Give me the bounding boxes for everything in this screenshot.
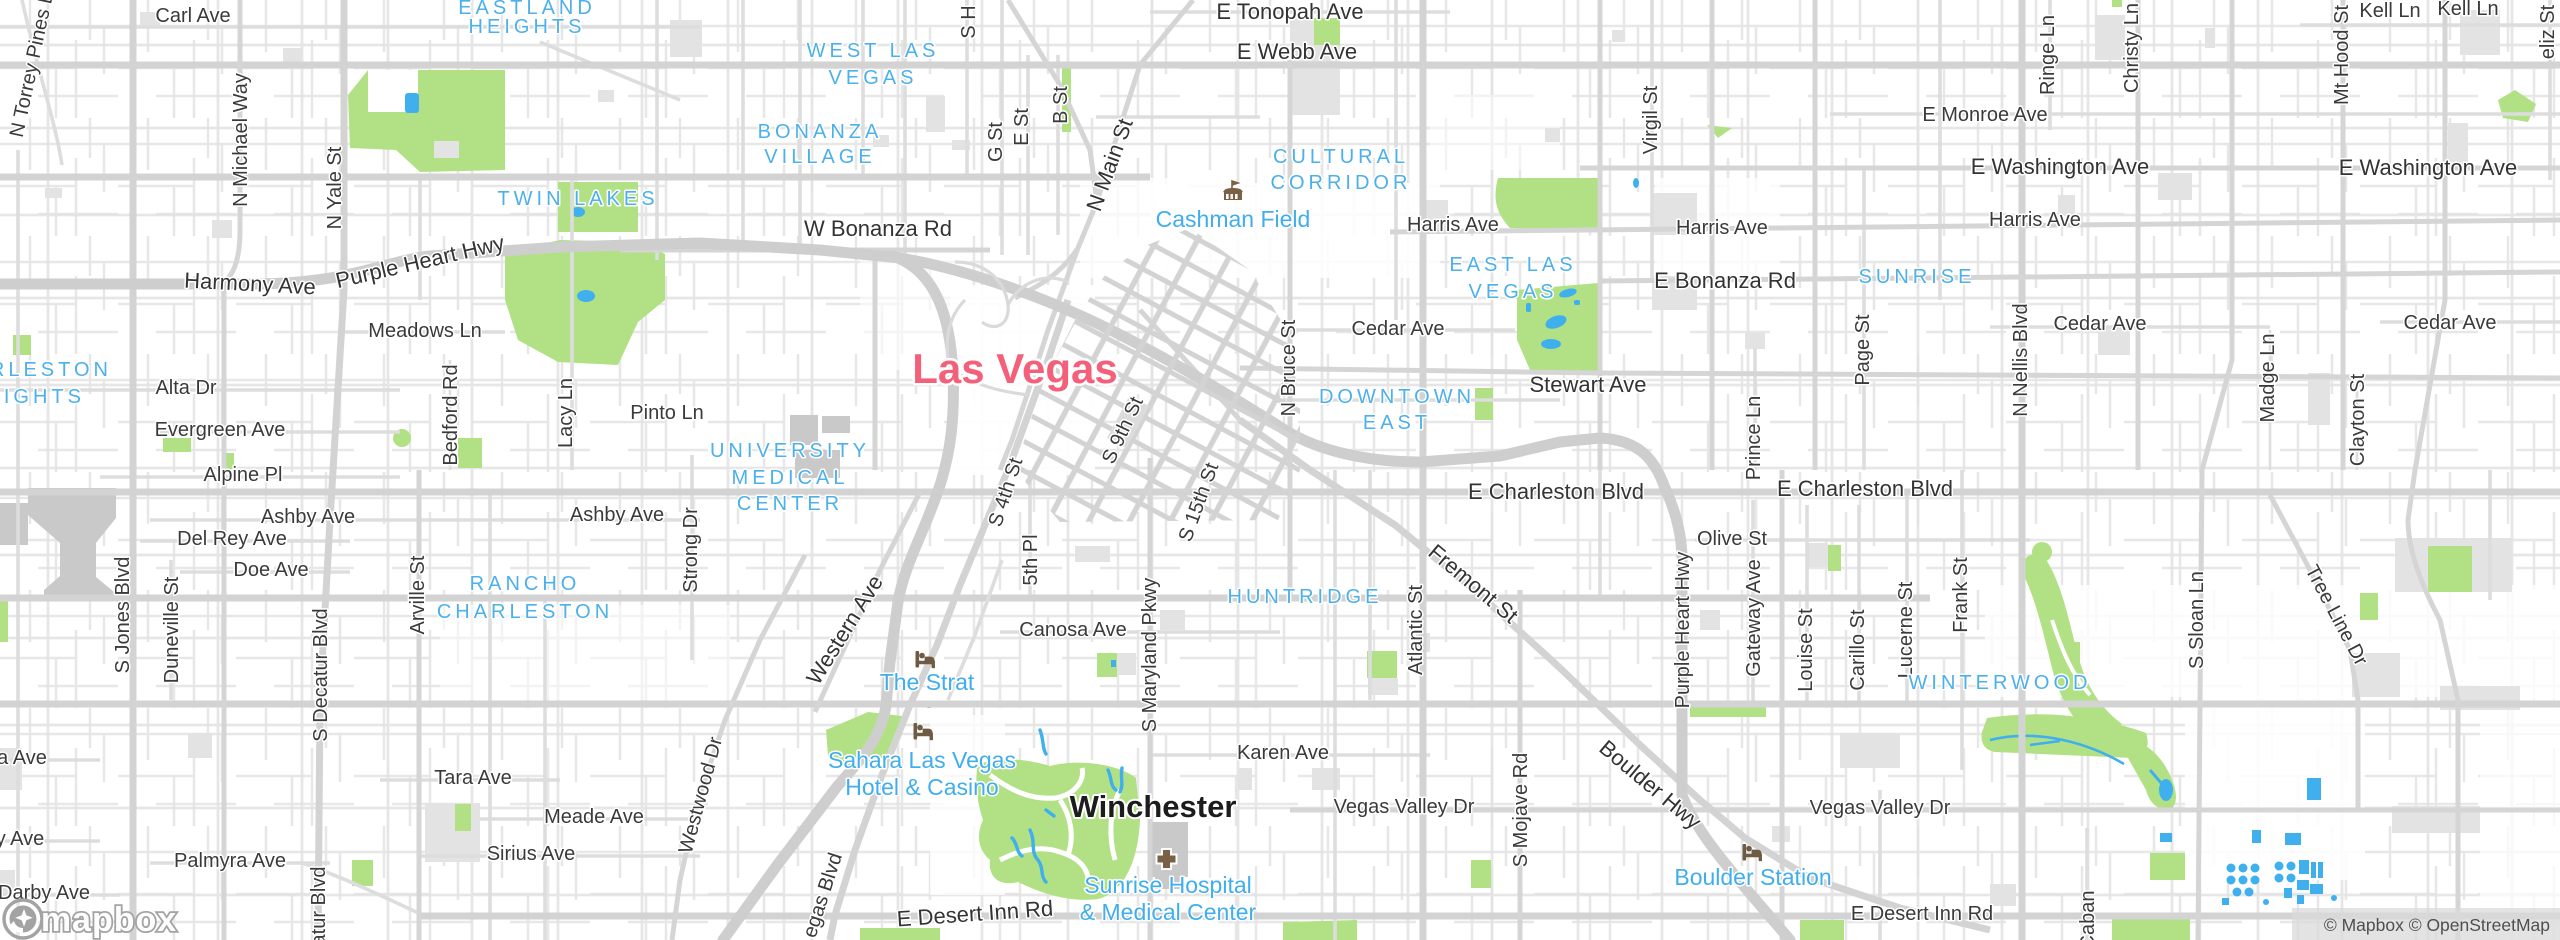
svg-text:N Yale St: N Yale St (324, 146, 346, 229)
svg-text:HEIGHTS: HEIGHTS (469, 16, 586, 38)
svg-text:Cedar Ave: Cedar Ave (1351, 318, 1444, 340)
svg-text:RANCHO: RANCHO (470, 573, 581, 595)
svg-text:Meade Ave: Meade Ave (544, 806, 644, 828)
svg-text:Harris Ave: Harris Ave (1989, 209, 2081, 231)
svg-text:E St: E St (1011, 108, 1033, 146)
svg-text:Christy Ln: Christy Ln (2121, 3, 2143, 93)
svg-text:Madge Ln: Madge Ln (2257, 334, 2279, 423)
svg-text:Vegas Valley Dr: Vegas Valley Dr (1334, 796, 1475, 818)
svg-text:HEIGHTS: HEIGHTS (0, 386, 85, 408)
svg-text:S Mojave Rd: S Mojave Rd (1510, 753, 1532, 868)
svg-text:N Nellis Blvd: N Nellis Blvd (2010, 303, 2032, 416)
svg-text:Arville St: Arville St (407, 555, 429, 634)
svg-text:Page St: Page St (1852, 314, 1874, 386)
svg-text:Canosa Ave: Canosa Ave (1019, 619, 1127, 641)
svg-text:mapbox: mapbox (41, 901, 177, 939)
svg-text:a Ave: a Ave (0, 747, 47, 769)
svg-text:HUNTRIDGE: HUNTRIDGE (1228, 586, 1383, 608)
svg-text:E Washington Ave: E Washington Ave (2339, 155, 2518, 180)
svg-text:5th Pl: 5th Pl (1020, 534, 1042, 585)
svg-text:atur Blvd: atur Blvd (308, 867, 330, 940)
svg-text:Doe Ave: Doe Ave (233, 559, 308, 581)
svg-text:Pinto Ln: Pinto Ln (630, 402, 703, 424)
svg-text:Ashby Ave: Ashby Ave (261, 506, 355, 528)
svg-text:VEGAS: VEGAS (1469, 281, 1558, 303)
svg-text:MEDICAL: MEDICAL (732, 467, 849, 489)
svg-text:Lucerne St: Lucerne St (1895, 581, 1917, 678)
svg-text:Karen Ave: Karen Ave (1237, 742, 1329, 764)
svg-text:TWIN LAKES: TWIN LAKES (497, 188, 658, 210)
svg-text:CHARLESTON: CHARLESTON (437, 601, 613, 623)
svg-text:E Webb Ave: E Webb Ave (1237, 39, 1357, 64)
svg-text:Evergreen Ave: Evergreen Ave (155, 419, 286, 441)
svg-text:Cedar Ave: Cedar Ave (2053, 313, 2146, 335)
svg-text:Kell Ln: Kell Ln (2359, 0, 2420, 22)
svg-text:W Bonanza Rd: W Bonanza Rd (804, 216, 952, 241)
svg-text:Harris Ave: Harris Ave (1676, 217, 1768, 239)
svg-text:Duneville St: Duneville St (161, 576, 183, 683)
svg-text:Strong Dr: Strong Dr (680, 507, 702, 593)
svg-text:S Decatur Blvd: S Decatur Blvd (310, 608, 332, 741)
svg-text:WEST LAS: WEST LAS (807, 40, 940, 62)
svg-text:Palmyra Ave: Palmyra Ave (174, 850, 286, 872)
svg-text:E Monroe Ave: E Monroe Ave (1922, 104, 2047, 126)
svg-text:Prince Ln: Prince Ln (1743, 396, 1765, 481)
svg-text:S Sloan Ln: S Sloan Ln (2186, 571, 2208, 669)
svg-text:Vegas Valley Dr: Vegas Valley Dr (1810, 797, 1951, 819)
svg-text:Kell Ln: Kell Ln (2437, 0, 2498, 20)
svg-text:VEGAS: VEGAS (829, 67, 918, 89)
svg-text:VILLAGE: VILLAGE (764, 146, 875, 168)
svg-text:The Strat: The Strat (880, 669, 975, 695)
svg-text:Del Rey Ave: Del Rey Ave (177, 528, 287, 550)
svg-text:DOWNTOWN: DOWNTOWN (1319, 386, 1475, 408)
svg-text:eliz St: eliz St (2537, 4, 2559, 59)
svg-text:BONANZA: BONANZA (758, 121, 883, 143)
svg-text:E Bonanza Rd: E Bonanza Rd (1654, 268, 1796, 293)
svg-text:Sunrise Hospital: Sunrise Hospital (1084, 872, 1251, 898)
svg-text:Caban: Caban (2077, 891, 2099, 940)
svg-text:Lacy Ln: Lacy Ln (555, 378, 577, 448)
svg-text:CHARLESTON: CHARLESTON (0, 359, 112, 381)
svg-text:SUNRISE: SUNRISE (1859, 266, 1976, 288)
svg-text:Ashby Ave: Ashby Ave (570, 504, 664, 526)
svg-text:Atlantic St: Atlantic St (1405, 585, 1427, 675)
svg-text:E Tonopah Ave: E Tonopah Ave (1216, 0, 1363, 24)
svg-text:Alpine Pl: Alpine Pl (204, 464, 283, 486)
svg-text:B St: B St (1050, 86, 1072, 124)
svg-text:Louise St: Louise St (1795, 608, 1817, 692)
svg-text:CORRIDOR: CORRIDOR (1271, 172, 1412, 194)
svg-text:S H: S H (958, 5, 980, 38)
svg-text:CENTER: CENTER (737, 493, 843, 515)
svg-text:© Mapbox © OpenStreetMap: © Mapbox © OpenStreetMap (2324, 915, 2550, 935)
svg-text:y Ave: y Ave (0, 828, 44, 850)
svg-text:S Jones Blvd: S Jones Blvd (112, 557, 134, 674)
svg-text:Purple Heart Hwy: Purple Heart Hwy (1672, 552, 1694, 709)
svg-text:Sirius Ave: Sirius Ave (487, 843, 576, 865)
svg-text:EAST LAS: EAST LAS (1449, 254, 1576, 276)
svg-text:Frank St: Frank St (1950, 557, 1972, 633)
svg-text:Ringe Ln: Ringe Ln (2037, 15, 2059, 95)
svg-text:Harris Ave: Harris Ave (1407, 214, 1499, 236)
svg-text:Tara Ave: Tara Ave (434, 767, 511, 789)
svg-text:CULTURAL: CULTURAL (1273, 146, 1409, 168)
svg-text:WINTERWOOD: WINTERWOOD (1909, 672, 2092, 694)
svg-text:E Charleston Blvd: E Charleston Blvd (1777, 476, 1953, 501)
svg-text:Bedford Rd: Bedford Rd (440, 364, 462, 465)
svg-text:Boulder Station: Boulder Station (1674, 864, 1831, 890)
svg-text:& Medical Center: & Medical Center (1080, 899, 1257, 925)
svg-text:E Washington Ave: E Washington Ave (1971, 154, 2150, 179)
svg-text:Virgil St: Virgil St (1640, 85, 1662, 154)
svg-text:Las Vegas: Las Vegas (912, 345, 1117, 392)
svg-text:Stewart Ave: Stewart Ave (1530, 372, 1647, 397)
svg-text:Clayton St: Clayton St (2347, 373, 2369, 466)
svg-text:Hotel & Casino: Hotel & Casino (845, 774, 998, 800)
svg-text:Sahara Las Vegas: Sahara Las Vegas (828, 747, 1016, 773)
svg-text:EAST: EAST (1363, 412, 1431, 434)
svg-text:G St: G St (985, 122, 1007, 162)
svg-text:E Desert Inn Rd: E Desert Inn Rd (1851, 903, 1993, 925)
svg-text:Cedar Ave: Cedar Ave (2403, 312, 2496, 334)
svg-text:Alta Dr: Alta Dr (155, 377, 216, 399)
svg-text:Winchester: Winchester (1070, 789, 1237, 824)
svg-text:E Charleston Blvd: E Charleston Blvd (1468, 479, 1644, 504)
svg-text:Carl Ave: Carl Ave (155, 5, 230, 27)
svg-text:UNIVERSITY: UNIVERSITY (710, 440, 870, 462)
svg-text:S Maryland Pkwy: S Maryland Pkwy (1139, 578, 1161, 733)
svg-text:N Bruce St: N Bruce St (1278, 319, 1300, 416)
svg-text:N Michael Way: N Michael Way (230, 73, 252, 207)
svg-text:Carillo St: Carillo St (1847, 609, 1869, 691)
svg-text:Mt Hood St: Mt Hood St (2331, 5, 2353, 105)
svg-text:Olive St: Olive St (1697, 528, 1767, 550)
svg-text:Cashman Field: Cashman Field (1156, 206, 1311, 232)
svg-text:Meadows Ln: Meadows Ln (368, 320, 481, 342)
svg-text:Gateway Ave: Gateway Ave (1743, 559, 1765, 676)
